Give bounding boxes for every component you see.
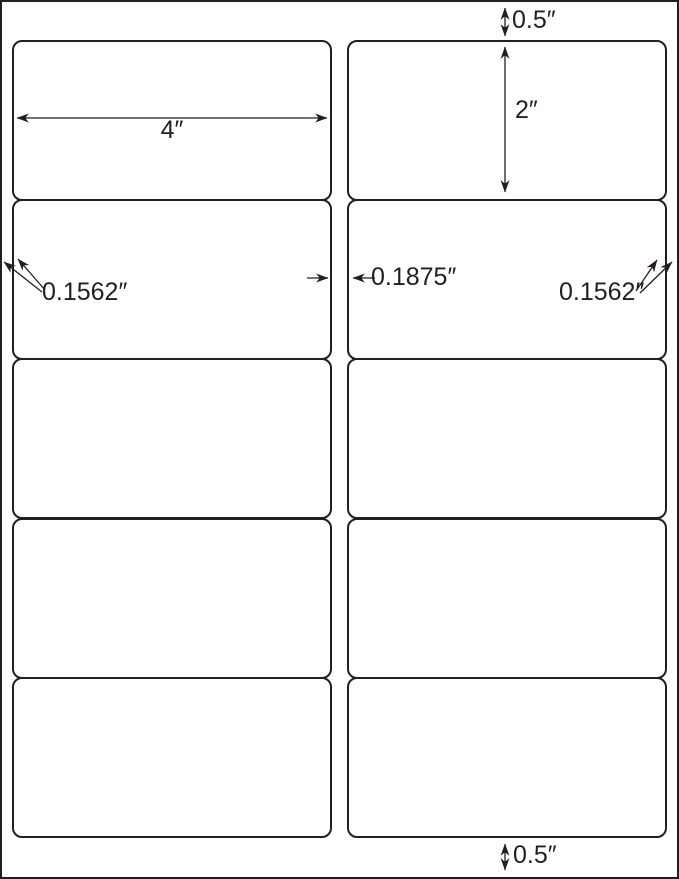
label-cell-r5c2: [347, 677, 667, 838]
label-cell-r3c1: [12, 358, 332, 519]
label-cell-r3c2: [347, 358, 667, 519]
top-margin-value: 0.5″: [512, 7, 556, 34]
label-width-value: 4″: [12, 117, 332, 144]
bottom-margin-value: 0.5″: [513, 842, 557, 869]
label-height-value: 2″: [515, 97, 538, 124]
label-cell-r4c2: [347, 518, 667, 679]
label-cell-r1c2: [347, 40, 667, 201]
label-cell-r4c1: [12, 518, 332, 679]
label-cell-r5c1: [12, 677, 332, 838]
column-gap-value: 0.1875″: [371, 264, 456, 291]
left-margin-value: 0.1562″: [42, 279, 127, 306]
right-margin-value: 0.1562″: [559, 279, 644, 306]
label-template-diagram: 0.5″ 2″ 4″ 0.1562″ 0.1875″ 0.1562″ 0.5″: [0, 0, 679, 879]
